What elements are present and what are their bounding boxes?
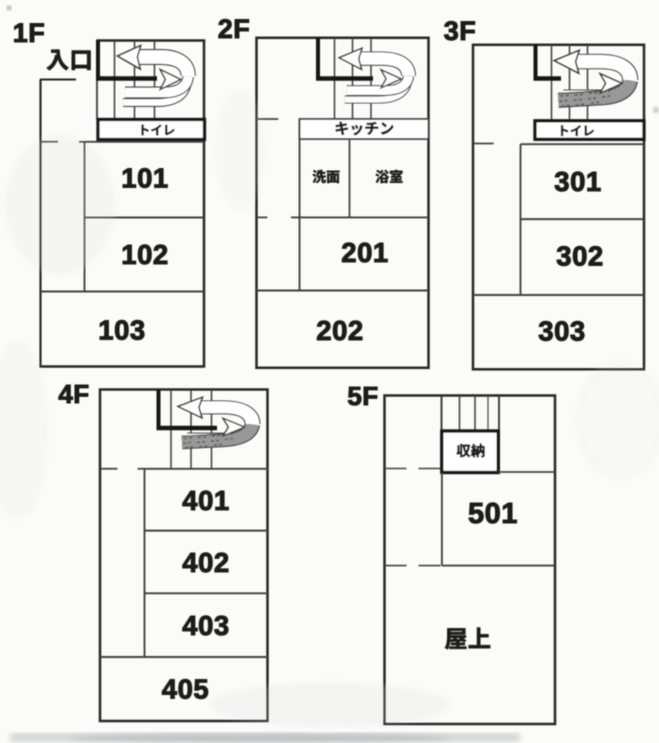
svg-text:303: 303 <box>538 315 585 346</box>
svg-text:403: 403 <box>182 610 229 641</box>
svg-text:405: 405 <box>162 673 209 704</box>
svg-text:5F: 5F <box>347 381 378 411</box>
svg-text:302: 302 <box>556 240 603 271</box>
svg-text:401: 401 <box>182 485 229 516</box>
svg-text:301: 301 <box>554 166 601 197</box>
svg-text:4F: 4F <box>58 379 89 409</box>
svg-text:402: 402 <box>182 547 229 578</box>
svg-text:202: 202 <box>316 315 363 346</box>
svg-text:1F: 1F <box>13 18 46 48</box>
svg-text:103: 103 <box>98 314 145 345</box>
svg-text:201: 201 <box>341 237 388 268</box>
svg-text:102: 102 <box>121 239 168 270</box>
svg-text:2F: 2F <box>218 14 251 44</box>
svg-text:3F: 3F <box>444 16 477 46</box>
svg-text:101: 101 <box>121 162 168 193</box>
svg-text:501: 501 <box>468 498 518 530</box>
